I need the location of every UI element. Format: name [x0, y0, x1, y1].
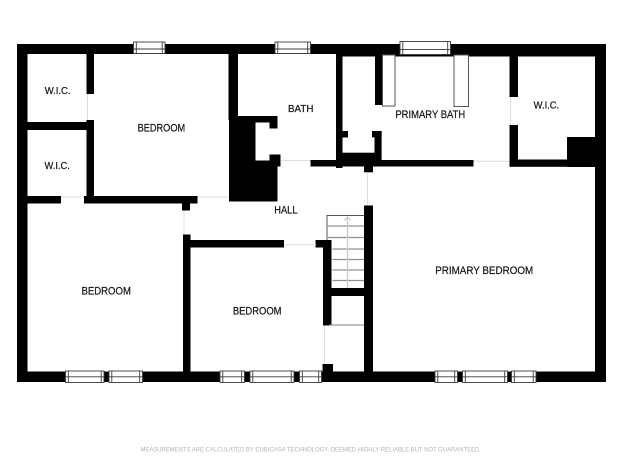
svg-text:BEDROOM: BEDROOM	[138, 123, 186, 135]
svg-text:BEDROOM: BEDROOM	[81, 285, 131, 297]
svg-text:BEDROOM: BEDROOM	[233, 306, 282, 318]
svg-text:W.I.C.: W.I.C.	[45, 86, 71, 97]
svg-text:W.I.C.: W.I.C.	[534, 101, 560, 112]
svg-text:HALL: HALL	[274, 205, 297, 217]
svg-text:MEASUREMENTS ARE CALCULATED BY: MEASUREMENTS ARE CALCULATED BY CUBICASA …	[140, 447, 481, 454]
svg-text:PRIMARY BEDROOM: PRIMARY BEDROOM	[435, 265, 533, 277]
svg-text:PRIMARY BATH: PRIMARY BATH	[395, 109, 465, 121]
svg-text:BATH: BATH	[288, 104, 313, 115]
svg-text:W.I.C.: W.I.C.	[45, 161, 70, 172]
